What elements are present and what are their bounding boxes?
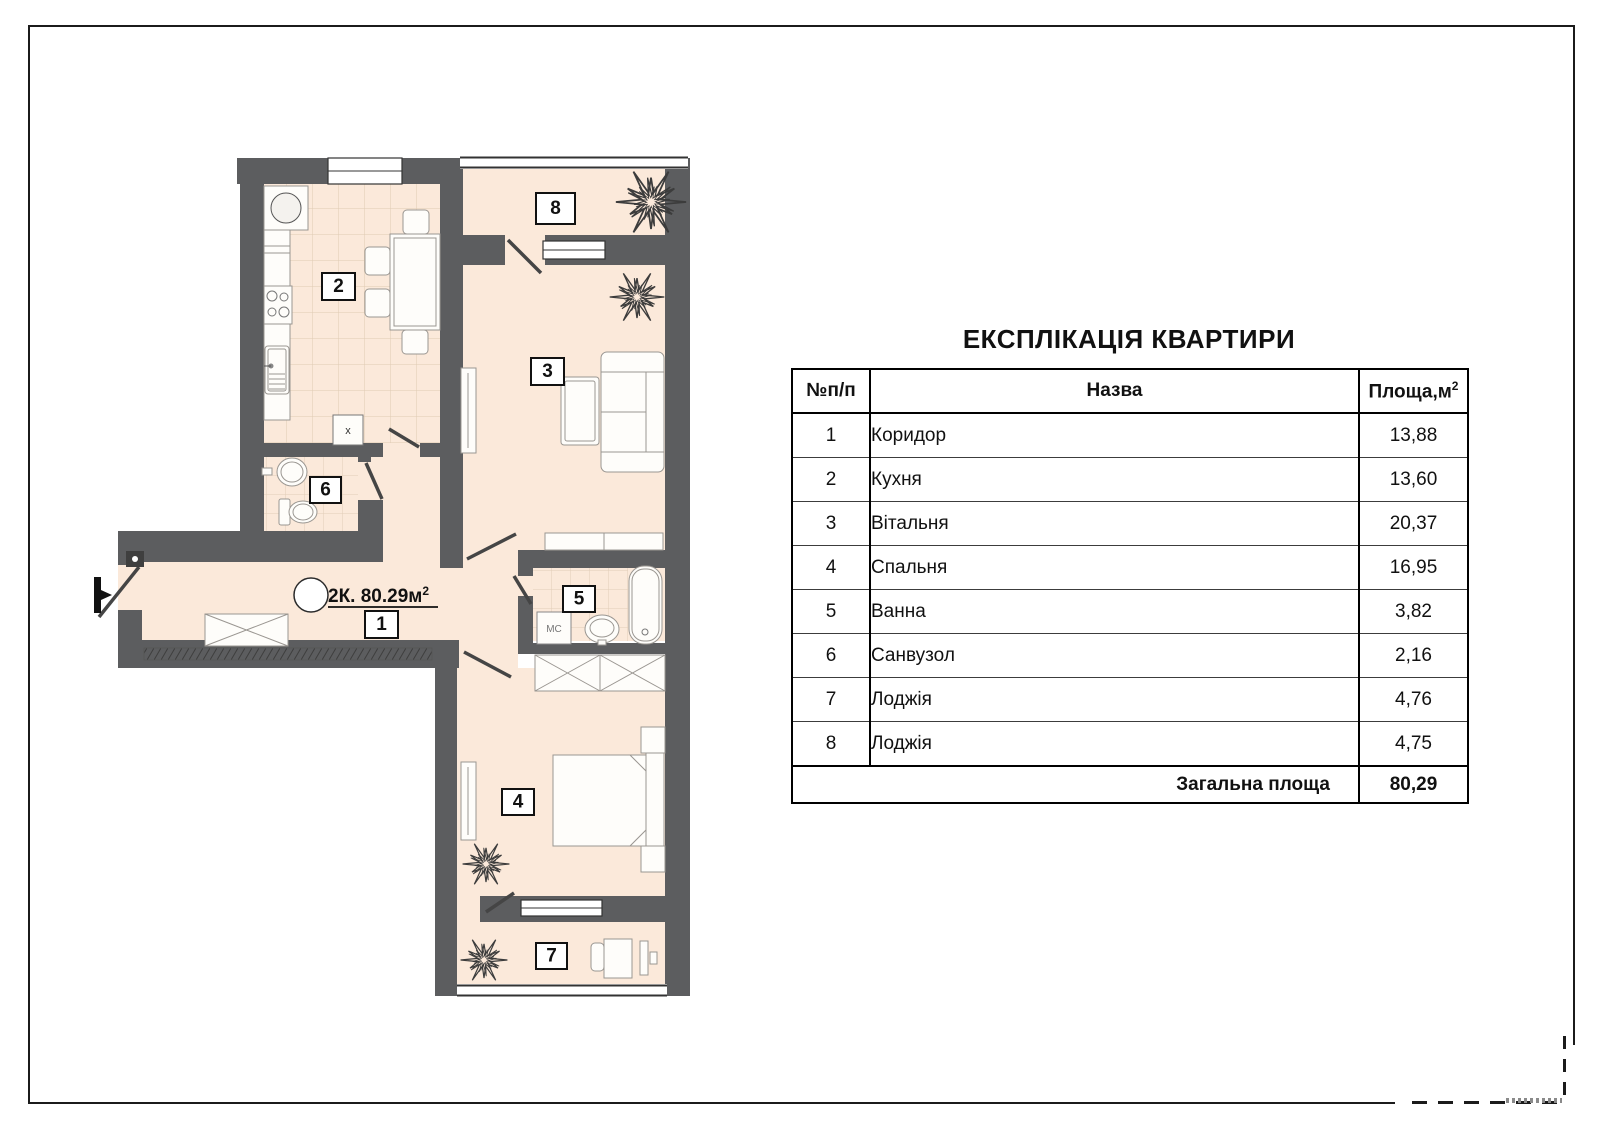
room-label-7: 7 (536, 943, 567, 969)
room-label-3: 3 (531, 358, 564, 385)
cell-name: Кухня (870, 458, 1359, 502)
apartment-area-text: 2К. 80.29м (328, 586, 422, 607)
frame-left (28, 25, 30, 1104)
svg-text:2К. 80.29м2: 2К. 80.29м2 (328, 584, 429, 607)
page: 2К. 80.29м2 1 2 3 4 5 6 7 8 х МС (0, 0, 1600, 1131)
cell-area: 2,16 (1359, 634, 1468, 678)
table-row: 6 Санвузол 2,16 (792, 634, 1468, 678)
apartment-area-sup: 2 (422, 584, 429, 598)
entrance-arrow-icon (94, 577, 112, 613)
floor-plan: 2К. 80.29м2 1 2 3 4 5 6 7 8 х МС (90, 140, 710, 1010)
cell-num: 8 (792, 722, 870, 767)
table-row: 1 Коридор 13,88 (792, 413, 1468, 458)
washing-machine (264, 186, 308, 237)
cell-area: 3,82 (1359, 590, 1468, 634)
svg-text:1: 1 (376, 614, 387, 635)
table-row: 7 Лоджія 4,76 (792, 678, 1468, 722)
frame-top (28, 25, 1575, 27)
explication-table: №п/п Назва Площа,м2 1 Коридор 13,88 2 Ку… (791, 368, 1467, 804)
cell-num: 4 (792, 546, 870, 590)
room-label-1: 1 (365, 611, 398, 638)
door-openings (505, 235, 545, 265)
cell-area: 13,88 (1359, 413, 1468, 458)
room-label-8: 8 (536, 193, 575, 224)
header-name: Назва (870, 369, 1359, 413)
cell-name: Коридор (870, 413, 1359, 458)
cell-num: 6 (792, 634, 870, 678)
table-row: 8 Лоджія 4,75 (792, 722, 1468, 767)
cell-num: 5 (792, 590, 870, 634)
entry-door-hinge (126, 551, 144, 567)
room-label-2: 2 (322, 273, 355, 300)
stove (264, 286, 292, 324)
shaft-marker: х (345, 425, 351, 437)
cell-name: Ванна (870, 590, 1359, 634)
cell-name: Лоджія (870, 722, 1359, 767)
cell-name: Спальня (870, 546, 1359, 590)
radiator-living (461, 368, 476, 453)
corridor-wardrobe (205, 614, 288, 646)
cell-area: 4,76 (1359, 678, 1468, 722)
watermark-marks (1506, 1098, 1562, 1103)
cell-area: 4,75 (1359, 722, 1468, 767)
room-label-4: 4 (502, 789, 534, 815)
armchair (561, 377, 599, 445)
bathtub (629, 566, 662, 644)
total-label: Загальна площа (792, 766, 1359, 803)
table-total-row: Загальна площа 80,29 (792, 766, 1468, 803)
svg-text:6: 6 (320, 480, 331, 501)
kitchen-sink (264, 346, 289, 394)
table-row: 5 Ванна 3,82 (792, 590, 1468, 634)
header-num: №п/п (792, 369, 870, 413)
total-value: 80,29 (1359, 766, 1468, 803)
svg-text:7: 7 (546, 946, 557, 967)
cell-num: 1 (792, 413, 870, 458)
closet-marker: МС (546, 624, 562, 635)
room-label-6: 6 (310, 477, 341, 503)
table-header-row: №п/п Назва Площа,м2 (792, 369, 1468, 413)
explication-title: ЕКСПЛІКАЦІЯ КВАРТИРИ (791, 324, 1467, 355)
cell-name: Санвузол (870, 634, 1359, 678)
cell-num: 2 (792, 458, 870, 502)
radiator-bedroom (461, 762, 476, 840)
svg-text:2: 2 (333, 276, 344, 297)
table-row: 3 Вітальня 20,37 (792, 502, 1468, 546)
sofa (601, 352, 664, 472)
sideboard (545, 533, 663, 550)
cell-name: Вітальня (870, 502, 1359, 546)
svg-text:3: 3 (542, 361, 553, 382)
table-row: 2 Кухня 13,60 (792, 458, 1468, 502)
svg-text:5: 5 (574, 589, 585, 610)
cell-area: 16,95 (1359, 546, 1468, 590)
cell-area: 20,37 (1359, 502, 1468, 546)
frame-right (1573, 25, 1575, 1045)
watermark-dash-vertical (1563, 1036, 1566, 1102)
frame-bottom (28, 1102, 1395, 1104)
cell-name: Лоджія (870, 678, 1359, 722)
bedroom-wardrobe (535, 655, 665, 691)
svg-text:8: 8 (550, 198, 561, 219)
room-label-5: 5 (563, 586, 595, 612)
cell-num: 3 (792, 502, 870, 546)
table-row: 4 Спальня 16,95 (792, 546, 1468, 590)
cell-area: 13,60 (1359, 458, 1468, 502)
svg-text:4: 4 (513, 792, 524, 813)
cell-num: 7 (792, 678, 870, 722)
hatch-strip (144, 648, 432, 660)
header-area: Площа,м2 (1359, 369, 1468, 413)
